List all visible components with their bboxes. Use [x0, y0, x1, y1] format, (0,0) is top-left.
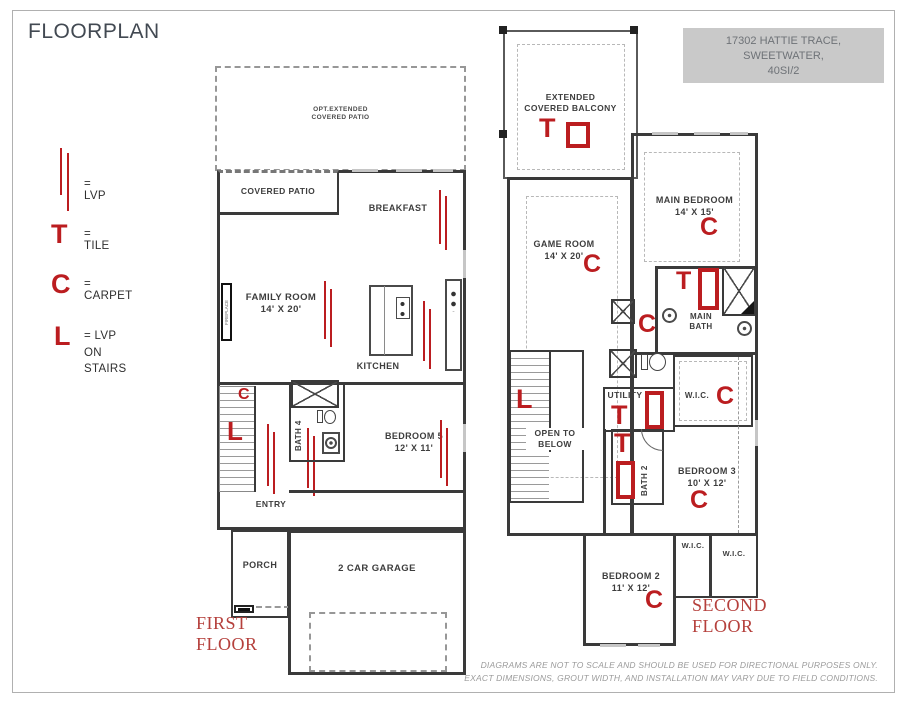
floorplan-page: FLOORPLAN 17302 HATTIE TRACE, SWEETWATER…	[0, 0, 907, 702]
room-dims: 14' X 20'	[508, 251, 620, 263]
open-to-below-label: OPEN TO BELOW	[526, 428, 584, 450]
toilet	[649, 353, 666, 371]
lvp-marker	[273, 432, 275, 494]
wic-main-label: W.I.C.	[675, 391, 719, 401]
window	[463, 250, 466, 278]
bath2-label: BATH 2	[640, 458, 652, 504]
lvp-legend-line	[67, 153, 69, 211]
porch-label: PORCH	[231, 560, 289, 572]
carpet-marker: C	[645, 588, 663, 613]
lvp-stairs-marker: L	[227, 418, 243, 444]
tile-sample	[616, 461, 635, 499]
cooktop	[448, 288, 460, 312]
room-dims: 14' X 20'	[228, 304, 334, 316]
tile-legend-symbol: T	[51, 221, 68, 248]
wall	[603, 429, 606, 533]
window	[755, 420, 758, 446]
window	[600, 644, 626, 647]
carpet-marker: C	[716, 384, 734, 409]
disclaimer-line: EXACT DIMENSIONS, GROUT WIDTH, AND INSTA…	[380, 672, 878, 685]
legend-lvp-stairs-line: = LVP ON	[84, 328, 126, 361]
carpet-marker: C	[238, 387, 250, 403]
room-label-line: BELOW	[526, 439, 584, 450]
game-room-label: GAME ROOM 14' X 20'	[508, 239, 620, 262]
room-dims: 14' X 15'	[631, 207, 758, 219]
window	[352, 169, 378, 172]
disclaimer-line: DIAGRAMS ARE NOT TO SCALE AND SHOULD BE …	[380, 659, 878, 672]
plan-code: 40SI/2	[683, 64, 884, 79]
lvp-stairs-marker: L	[516, 386, 533, 413]
lvp-marker	[423, 301, 425, 361]
balcony-post	[499, 130, 507, 138]
balcony-label: EXTENDED COVERED BALCONY	[503, 92, 638, 114]
shower	[609, 349, 637, 378]
garage-label: 2 CAR GARAGE	[288, 563, 466, 575]
kitchen-island	[369, 285, 413, 356]
lvp-marker	[440, 420, 442, 478]
toilet	[641, 354, 648, 370]
carpet-marker: C	[700, 215, 718, 240]
breakfast-label: BREAKFAST	[352, 203, 444, 215]
carpet-marker: C	[690, 488, 708, 513]
room-label-line: OPEN TO	[526, 428, 584, 439]
room-name: BEDROOM 3	[660, 466, 754, 478]
room-name: GAME ROOM	[508, 239, 620, 251]
room-label-line: MAIN	[678, 312, 724, 322]
address-line: 17302 HATTIE TRACE,	[683, 34, 884, 49]
lvp-marker	[330, 289, 332, 347]
stairs-second-floor	[511, 352, 549, 501]
legend-lvp-stairs-label: = LVP ON STAIRS	[84, 328, 126, 378]
room-label-line: EXTENDED	[503, 92, 638, 103]
room-name: FAMILY ROOM	[228, 292, 334, 304]
page-title: FLOORPLAN	[28, 20, 160, 44]
wall	[289, 490, 466, 493]
window	[396, 169, 422, 172]
carpet-legend-symbol: C	[51, 271, 71, 298]
shower-corner	[741, 301, 754, 314]
legend-lvp-stairs-line: STAIRS	[84, 361, 126, 378]
sink	[325, 437, 337, 449]
opt-extended-patio-label: OPT.EXTENDED COVERED PATIO	[215, 106, 466, 123]
lvp-marker	[446, 428, 448, 486]
lvp-stairs-legend-symbol: L	[54, 323, 71, 350]
wall	[655, 266, 658, 355]
lvp-marker	[439, 190, 441, 244]
kitchen-label: KITCHEN	[347, 361, 409, 373]
legend-tile-label: = TILE	[84, 228, 109, 252]
lvp-marker	[324, 281, 326, 339]
lvp-marker	[267, 424, 269, 486]
window	[433, 169, 453, 172]
address-line: SWEETWATER,	[683, 49, 884, 64]
room-name: BEDROOM 5	[372, 431, 456, 443]
sink	[662, 308, 677, 323]
tile-sample	[566, 122, 590, 148]
window	[463, 424, 466, 452]
disclaimer: DIAGRAMS ARE NOT TO SCALE AND SHOULD BE …	[380, 659, 878, 685]
opt-line	[738, 357, 739, 533]
main-bath-label: MAIN BATH	[678, 312, 724, 333]
balcony-post	[630, 26, 638, 34]
window	[638, 644, 660, 647]
tile-marker: T	[611, 402, 628, 429]
toilet	[324, 410, 336, 424]
island-stove	[396, 297, 410, 319]
window	[652, 132, 678, 135]
island-divider	[384, 286, 385, 355]
entry-label: ENTRY	[248, 499, 294, 510]
carpet-marker: C	[638, 312, 656, 337]
family-room-label: FAMILY ROOM 14' X 20'	[228, 292, 334, 317]
room-label-line: COVERED PATIO	[215, 114, 466, 122]
room-label-line: COVERED BALCONY	[503, 103, 638, 114]
address-info-box: 17302 HATTIE TRACE, SWEETWATER, 40SI/2	[683, 28, 884, 83]
tile-marker: T	[676, 269, 691, 294]
room-name: BEDROOM 2	[588, 571, 674, 583]
room-dims: 12' X 11'	[372, 443, 456, 455]
column-post	[611, 299, 635, 324]
room-name: MAIN BEDROOM	[631, 195, 758, 207]
stair-rail	[254, 386, 256, 492]
room-label-line: BATH	[678, 322, 724, 332]
window	[694, 132, 720, 135]
wic-left-label: W.I.C.	[676, 541, 710, 551]
carpet-marker: C	[583, 252, 601, 277]
walkway-dashes	[256, 606, 290, 608]
wic-right-label: W.I.C.	[712, 549, 756, 559]
legend-lvp-label: = LVP	[84, 178, 106, 202]
bedroom5-label: BEDROOM 5 12' X 11'	[372, 431, 456, 454]
tile-marker: T	[614, 430, 631, 457]
main-bedroom-label: MAIN BEDROOM 14' X 15'	[631, 195, 758, 218]
sink	[737, 321, 752, 336]
bath4-label: BATH 4	[294, 410, 306, 462]
tile-sample	[645, 391, 664, 429]
balcony-post	[499, 26, 507, 34]
legend-carpet-label: = CARPET	[84, 278, 132, 302]
room-label-line: OPT.EXTENDED	[215, 106, 466, 114]
lvp-marker	[429, 309, 431, 369]
covered-patio-label: COVERED PATIO	[217, 186, 339, 197]
window	[730, 132, 748, 135]
lvp-marker	[445, 196, 447, 250]
front-door-step	[234, 605, 254, 613]
second-floor-title: SECOND FLOOR	[692, 595, 767, 637]
tile-sample	[698, 268, 719, 310]
lvp-legend-line	[60, 148, 62, 195]
toilet	[317, 410, 323, 423]
first-floor-title: FIRST FLOOR	[196, 613, 258, 655]
tile-marker: T	[539, 115, 556, 142]
